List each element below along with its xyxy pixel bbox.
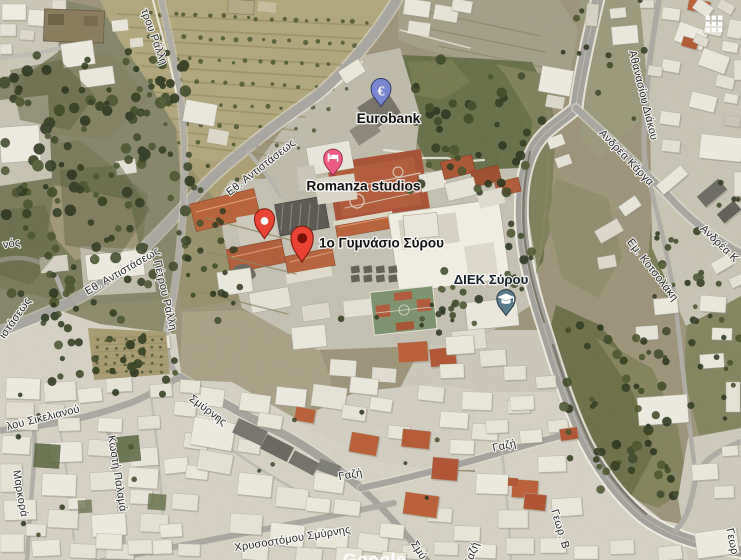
svg-text:€: € (378, 85, 385, 100)
svg-text:1ο Γυμνάσιο Σύρου: 1ο Γυμνάσιο Σύρου (319, 236, 444, 251)
svg-text:ΔΙΕΚ Σύρου: ΔΙΕΚ Σύρου (454, 272, 529, 287)
svg-text:νός: νός (2, 237, 21, 251)
svg-text:Google: Google (343, 550, 406, 560)
svg-text:Eurobank: Eurobank (357, 111, 421, 126)
svg-text:Romanza studios: Romanza studios (306, 179, 421, 194)
